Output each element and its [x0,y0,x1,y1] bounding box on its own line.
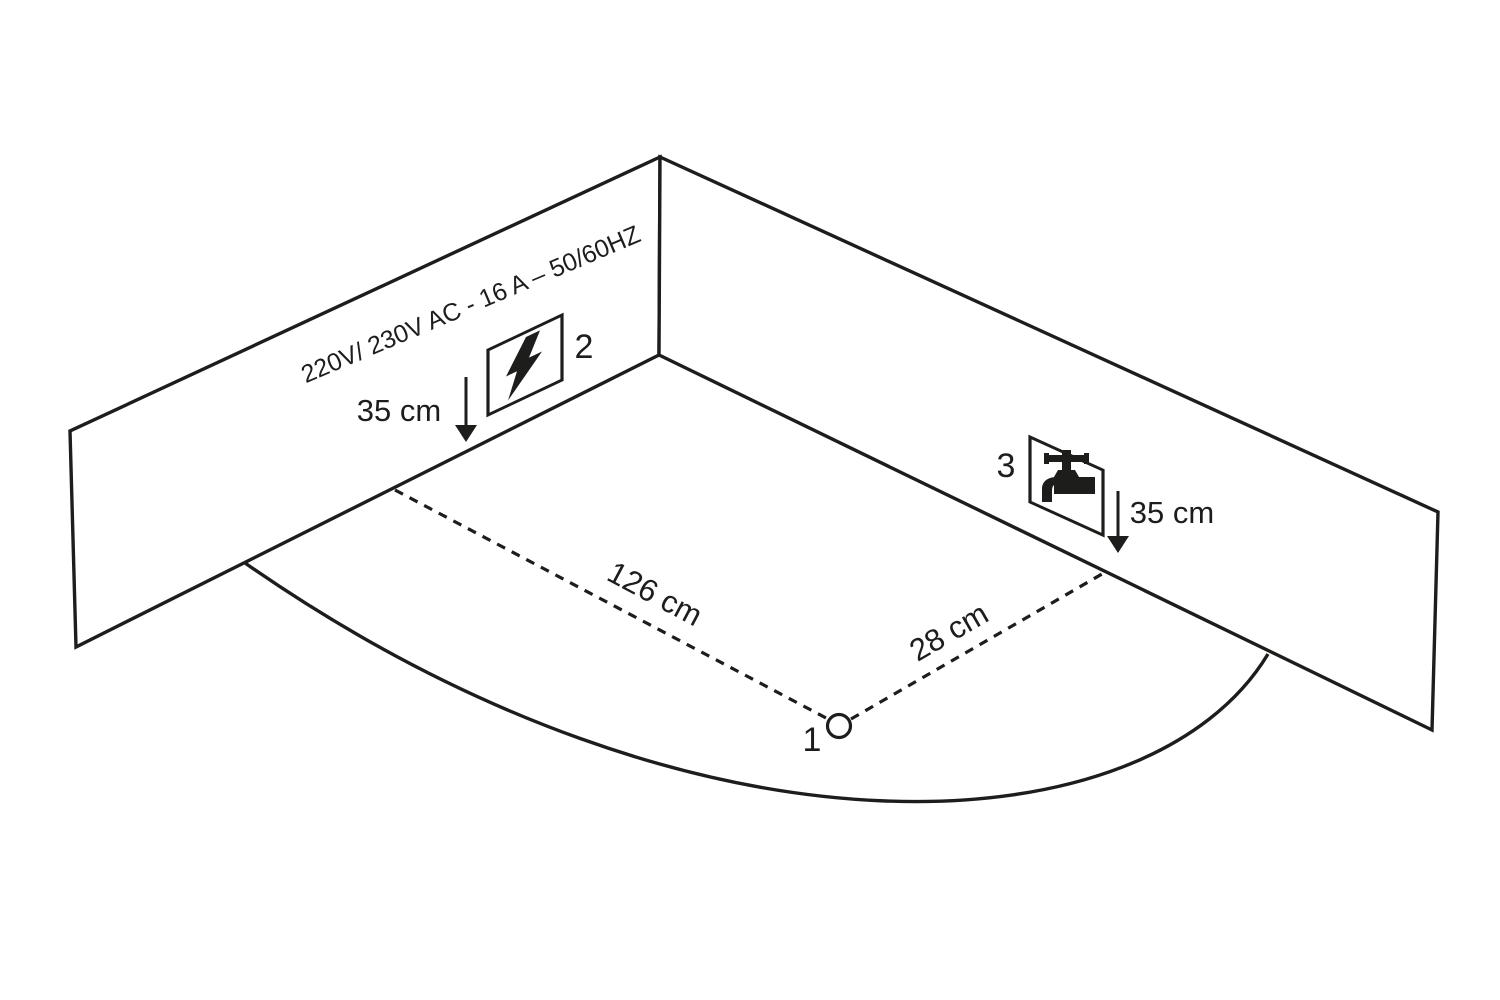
installation-diagram: 220V/ 230V AC - 16 A – 50/60HZ 35 cm 2 3… [0,0,1500,1000]
bathtub-edge-arc [245,563,1268,802]
tap-height-label: 35 cm [1130,495,1214,530]
installation-diagram-page: 220V/ 230V AC - 16 A – 50/60HZ 35 cm 2 3… [0,0,1500,1000]
point-2-label: 2 [575,328,594,366]
point-1-marker [828,715,851,738]
right-wall-panel [659,157,1438,730]
outlet-height-label: 35 cm [357,393,441,428]
distance-line-left [395,490,828,719]
distance-right-label: 28 cm [903,596,994,669]
point-3-label: 3 [997,447,1016,485]
point-1-label: 1 [803,721,822,759]
distance-left-label: 126 cm [602,554,708,633]
